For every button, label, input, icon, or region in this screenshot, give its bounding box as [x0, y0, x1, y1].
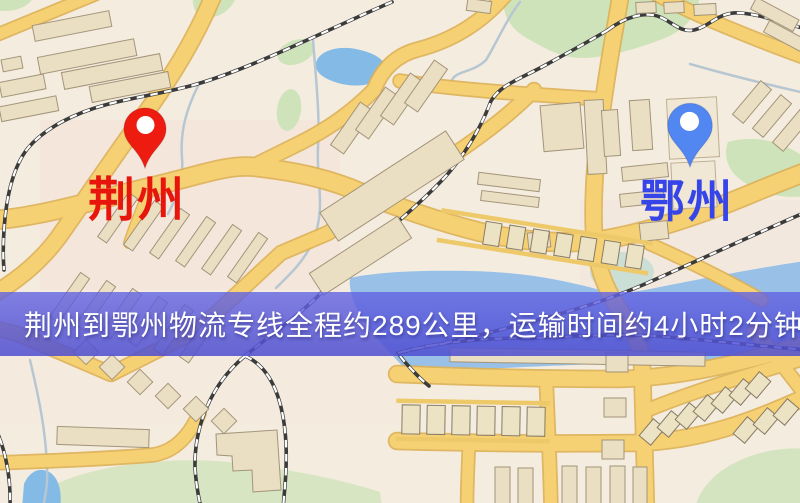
origin-city-label: 荆州	[88, 173, 186, 226]
destination-city-label: 鄂州	[640, 176, 734, 227]
route-info-text: 荆州到鄂州物流专线全程约289公里，运输时间约4小时2分钟.	[0, 304, 800, 344]
route-map: 荆州 鄂州 荆州到鄂州物流专线全程约289公里，运输时间约4小时2分钟.	[0, 0, 800, 503]
route-info-banner: 荆州到鄂州物流专线全程约289公里，运输时间约4小时2分钟.	[0, 292, 800, 356]
map-canvas: 荆州 鄂州	[0, 0, 800, 503]
